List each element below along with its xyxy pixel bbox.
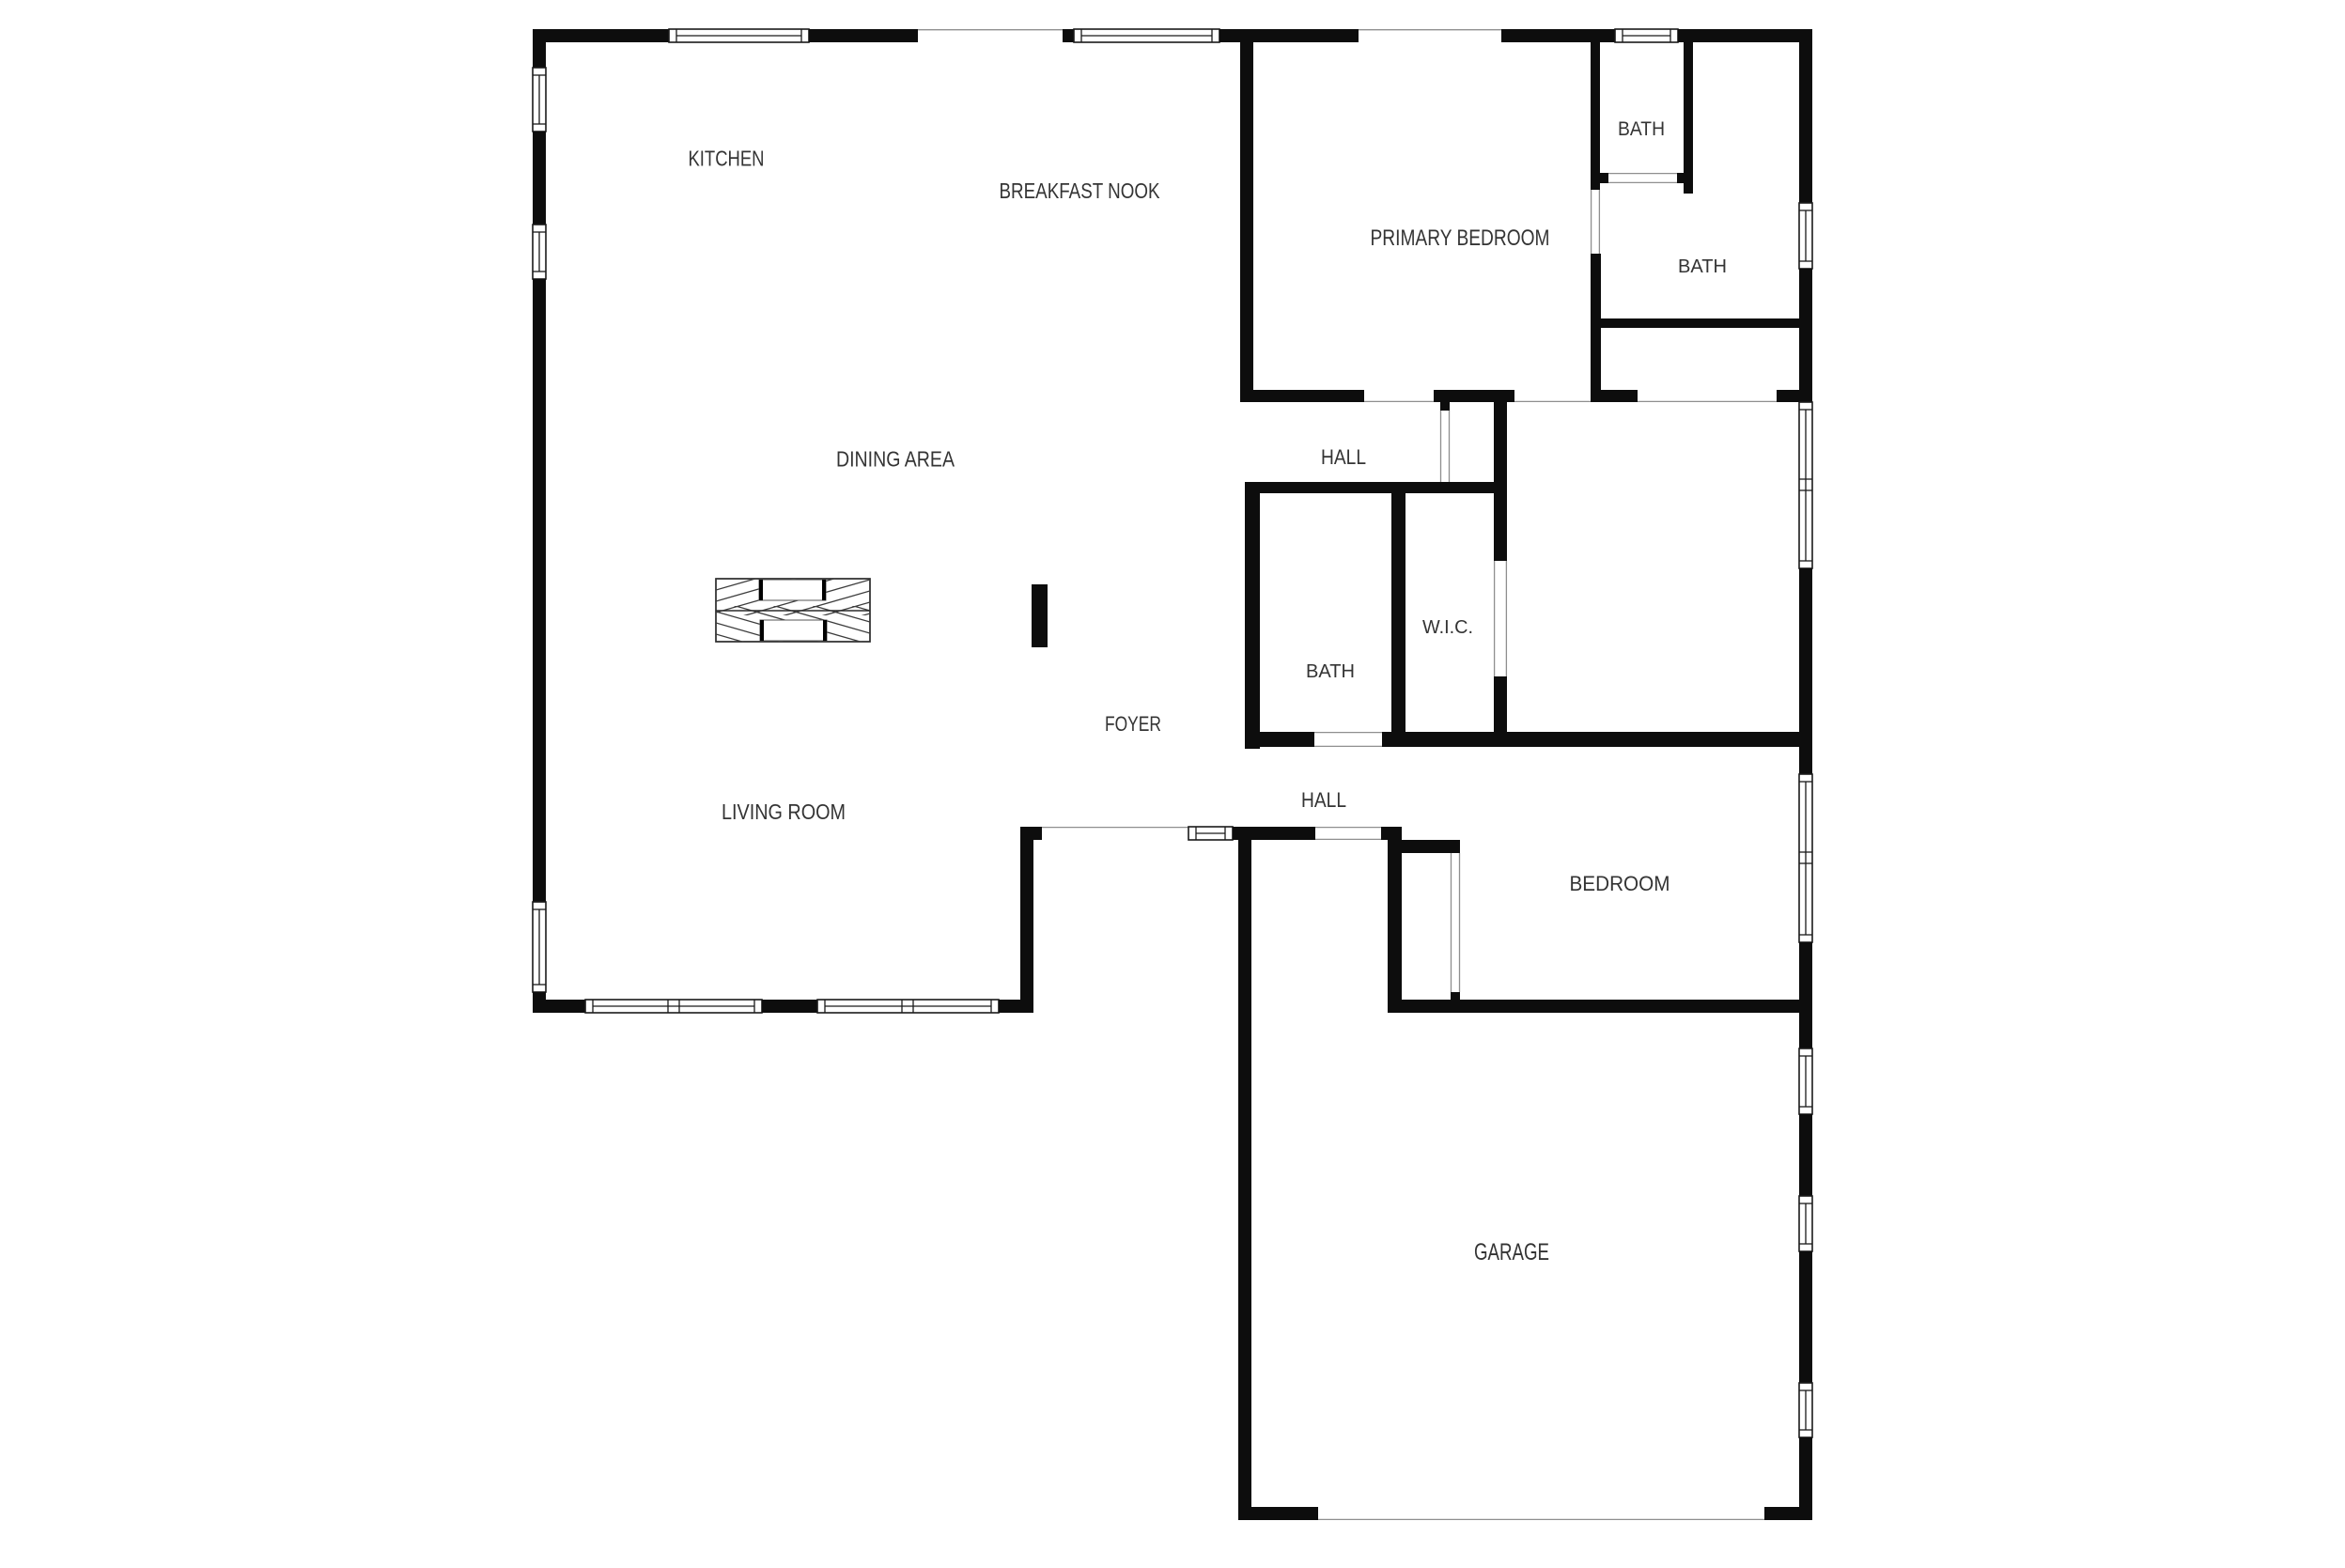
svg-text:PRIMARY BEDROOM: PRIMARY BEDROOM [1371,225,1550,251]
svg-text:W.I.C.: W.I.C. [1422,617,1473,638]
svg-text:HALL: HALL [1321,445,1366,469]
svg-text:KITCHEN: KITCHEN [689,147,765,171]
svg-text:BATH: BATH [1306,661,1355,682]
svg-text:FOYER: FOYER [1105,712,1161,736]
svg-text:BATH: BATH [1678,256,1727,277]
svg-text:LIVING ROOM: LIVING ROOM [722,800,846,824]
svg-text:BREAKFAST NOOK: BREAKFAST NOOK [1000,179,1160,203]
svg-text:HALL: HALL [1301,788,1346,812]
svg-text:DINING AREA: DINING AREA [836,447,955,472]
svg-text:GARAGE: GARAGE [1474,1239,1549,1265]
svg-text:BATH: BATH [1618,118,1665,140]
svg-text:BEDROOM: BEDROOM [1570,872,1670,895]
